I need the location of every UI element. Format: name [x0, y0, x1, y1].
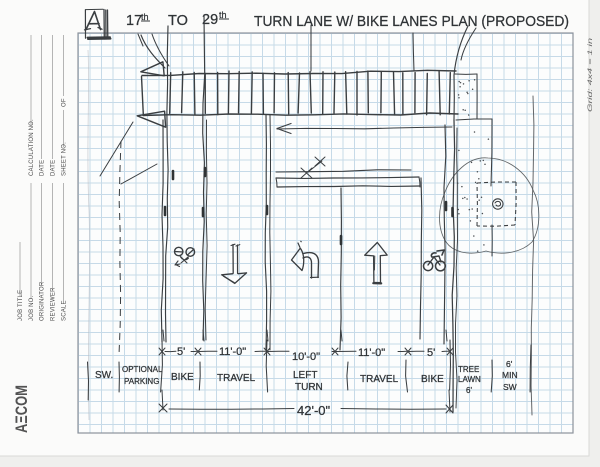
svg-text:SW.: SW. [95, 370, 113, 381]
svg-text:ORIGINATOR: ORIGINATOR [40, 281, 46, 321]
svg-text:JOB NO.: JOB NO. [29, 295, 35, 321]
svg-text:Grid: 4x4 = 1 in: Grid: 4x4 = 1 in [587, 37, 594, 112]
svg-text:TRAVEL: TRAVEL [217, 373, 256, 384]
svg-text:LEFT: LEFT [293, 370, 317, 381]
svg-text:REVIEWER: REVIEWER [51, 287, 57, 321]
svg-text:5': 5' [177, 346, 185, 358]
svg-text:17: 17 [126, 13, 142, 29]
svg-text:LAWN: LAWN [458, 375, 481, 384]
svg-text:11'-0": 11'-0" [219, 346, 246, 358]
svg-text:OPTIONAL: OPTIONAL [122, 365, 163, 374]
svg-text:AΞCOM: AΞCOM [12, 385, 31, 433]
svg-text:10'-0": 10'-0" [292, 351, 320, 363]
svg-text:PARKING: PARKING [124, 377, 159, 386]
svg-text:BIKE: BIKE [421, 374, 444, 385]
svg-text:6': 6' [506, 359, 513, 369]
svg-text:TREE: TREE [458, 365, 479, 374]
svg-text:OF: OF [62, 98, 68, 107]
svg-text:TURN LANE W/ BIKE LANES PLAN (: TURN LANE W/ BIKE LANES PLAN (PROPOSED) [254, 14, 569, 30]
svg-text:TRAVEL: TRAVEL [360, 374, 399, 385]
svg-text:SCALE: SCALE [62, 300, 68, 321]
svg-text:5': 5' [427, 347, 435, 359]
svg-text:DATE: DATE [40, 160, 46, 176]
svg-text:SW: SW [503, 382, 517, 392]
svg-text:MIN: MIN [502, 370, 518, 380]
svg-text:TO: TO [168, 13, 188, 29]
svg-text:11'-0": 11'-0" [358, 347, 385, 359]
svg-text:JOB TITLE: JOB TITLE [18, 290, 24, 321]
svg-text:6': 6' [466, 386, 472, 395]
svg-text:42'-0": 42'-0" [297, 403, 331, 418]
svg-text:BIKE: BIKE [171, 372, 194, 383]
svg-text:CALCULATION NO.: CALCULATION NO. [29, 119, 35, 176]
svg-text:SHEET NO.: SHEET NO. [62, 142, 68, 176]
svg-text:TURN: TURN [295, 382, 323, 393]
svg-text:DATE: DATE [51, 160, 57, 176]
